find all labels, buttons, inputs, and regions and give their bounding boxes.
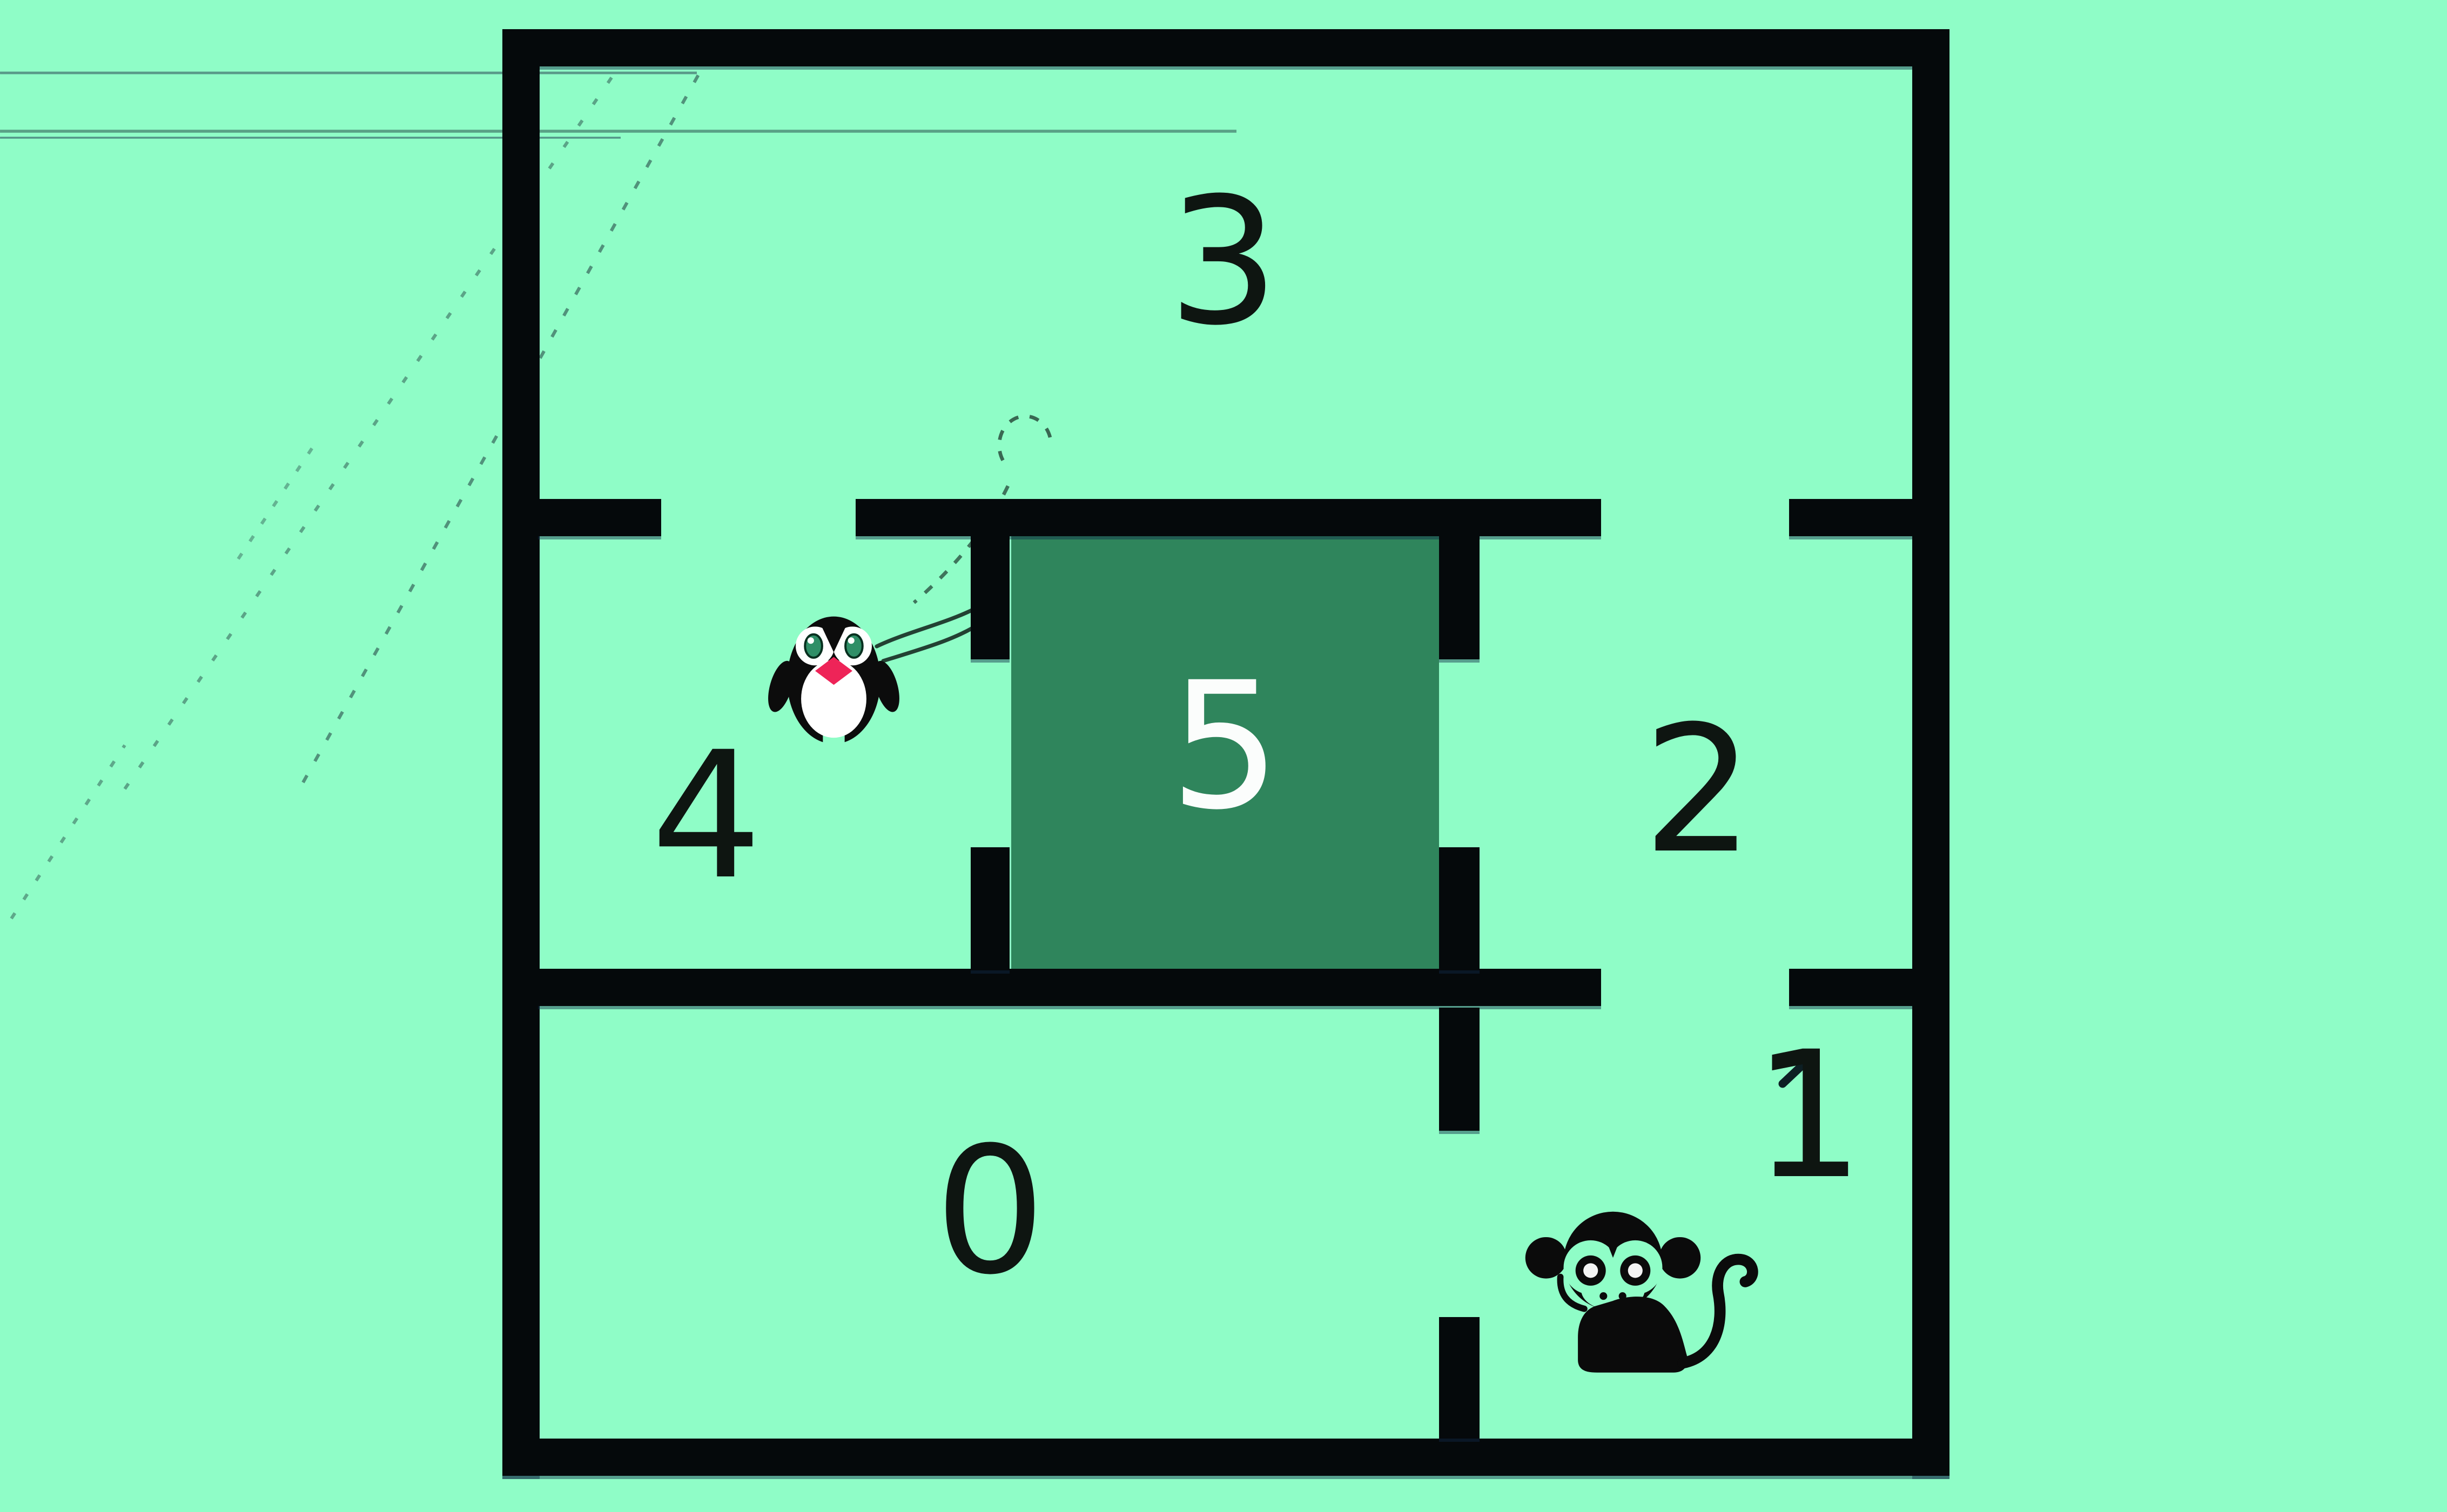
sketch-diagonal — [11, 745, 125, 919]
monkey-icon — [1525, 1212, 1753, 1373]
room-2-label: 2 — [1643, 705, 1754, 880]
room-0-label: 0 — [935, 1126, 1046, 1301]
game-stage: 3 4 5 2 0 1 — [0, 0, 2447, 1512]
penguin-icon — [763, 617, 904, 752]
sketch-diagonal — [238, 437, 319, 559]
wall-row2-left-segment — [538, 969, 1601, 1006]
room-3-label: 3 — [1168, 177, 1279, 352]
wall-room0-room1-lower — [1439, 1317, 1480, 1439]
wall-room5-right-upper — [1439, 536, 1480, 659]
wall-outer-right — [1912, 29, 1949, 1476]
wall-room0-room1-upper — [1439, 1008, 1480, 1131]
wall-row1-middle-segment — [856, 499, 1601, 536]
room-4-label: 4 — [651, 731, 762, 906]
wall-row1-left-segment — [538, 499, 661, 536]
room-5-label: 5 — [1169, 661, 1281, 836]
wall-outer-top — [502, 29, 1949, 66]
wall-outer-left — [502, 29, 540, 1476]
wall-row1-right-segment — [1789, 499, 1912, 536]
wall-outer-bottom — [502, 1439, 1949, 1476]
penguin-character[interactable] — [755, 599, 912, 752]
wall-row2-right-segment — [1789, 969, 1912, 1006]
wall-room5-right-lower — [1439, 847, 1480, 970]
monkey-character[interactable] — [1517, 1204, 1773, 1395]
room-1-label: 1 — [1753, 1030, 1864, 1205]
wall-room5-left-upper — [971, 536, 1010, 659]
wall-room5-left-lower — [971, 847, 1010, 970]
